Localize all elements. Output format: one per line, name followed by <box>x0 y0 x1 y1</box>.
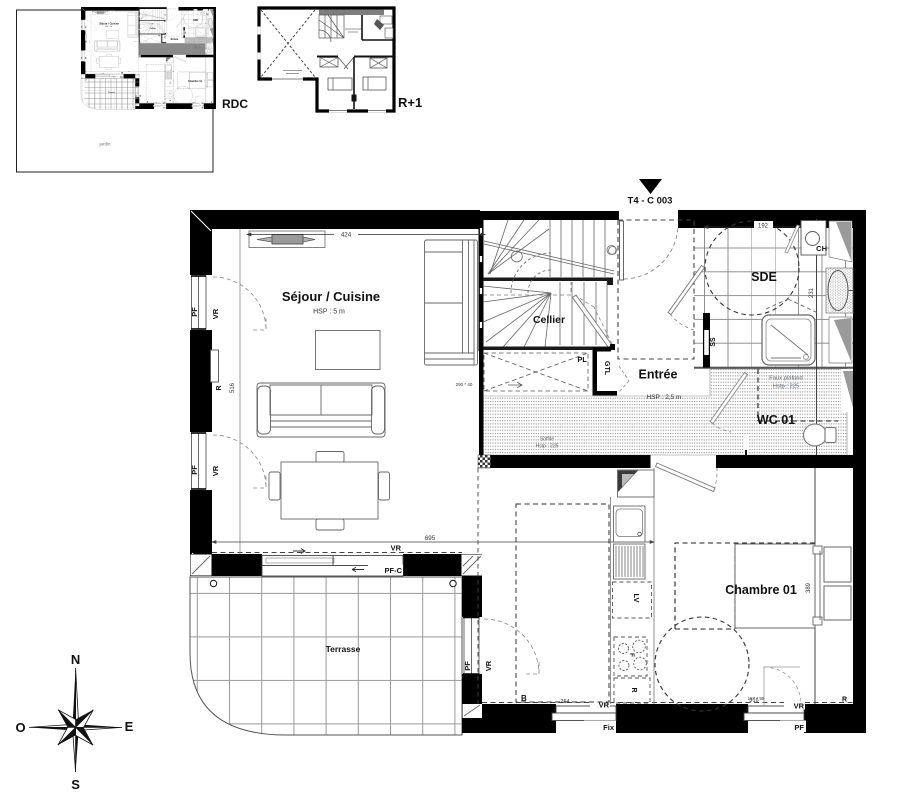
svg-text:SDE: SDE <box>751 270 777 284</box>
svg-text:S: S <box>71 777 80 792</box>
svg-text:PF-C: PF-C <box>385 566 403 575</box>
svg-text:516: 516 <box>230 382 236 393</box>
svg-text:PF: PF <box>794 723 804 732</box>
svg-text:O: O <box>15 720 25 735</box>
svg-text:R: R <box>842 697 847 704</box>
svg-text:CH: CH <box>816 244 827 253</box>
svg-text:231: 231 <box>809 287 815 298</box>
svg-text:E: E <box>125 719 134 734</box>
svg-text:PF: PF <box>190 307 199 317</box>
svg-text:Entrée: Entrée <box>639 368 678 382</box>
svg-text:PF: PF <box>190 465 199 475</box>
svg-text:VR: VR <box>794 702 805 711</box>
svg-text:Cellier: Cellier <box>533 314 565 326</box>
svg-text:N: N <box>71 652 80 667</box>
svg-text:695: 695 <box>425 535 436 542</box>
svg-text:VR: VR <box>211 308 220 319</box>
svg-text:jardin: jardin <box>98 142 111 147</box>
svg-text:Hstp : 225: Hstp : 225 <box>536 444 559 450</box>
svg-text:VR: VR <box>211 465 220 476</box>
svg-text:PF: PF <box>463 661 472 671</box>
svg-text:290 * 40: 290 * 40 <box>456 382 473 387</box>
svg-text:SS: SS <box>710 337 717 347</box>
svg-text:Terrasse: Terrasse <box>326 644 361 654</box>
svg-text:GTL: GTL <box>603 361 610 376</box>
svg-text:Fix: Fix <box>603 723 615 732</box>
svg-text:PL: PL <box>577 355 587 364</box>
svg-text:389: 389 <box>806 582 812 593</box>
svg-text:T4 - C 003: T4 - C 003 <box>628 196 673 207</box>
svg-text:HSP : 5 m: HSP : 5 m <box>313 309 345 316</box>
svg-text:RDC: RDC <box>222 97 248 111</box>
svg-text:Soffite: Soffite <box>540 437 554 443</box>
svg-text:HSP : 2,5 m: HSP : 2,5 m <box>647 394 682 401</box>
svg-text:192: 192 <box>758 224 769 230</box>
svg-text:R+1: R+1 <box>398 95 422 110</box>
svg-text:WC 01: WC 01 <box>757 413 795 427</box>
svg-text:VR: VR <box>484 660 493 671</box>
svg-text:R: R <box>630 687 637 692</box>
svg-text:Séjour / Cuisine: Séjour / Cuisine <box>282 289 380 304</box>
svg-text:Chambre 01: Chambre 01 <box>725 583 797 597</box>
svg-text:Hstp : 225: Hstp : 225 <box>773 384 799 390</box>
svg-text:LV: LV <box>632 593 641 602</box>
svg-text:VR: VR <box>391 544 402 553</box>
svg-text:R: R <box>216 385 223 390</box>
svg-text:Faux plafond: Faux plafond <box>769 376 803 382</box>
svg-text:424: 424 <box>341 232 352 239</box>
svg-text:157 * 95: 157 * 95 <box>748 696 765 701</box>
svg-text:B: B <box>521 694 527 703</box>
svg-text:F: F <box>628 653 635 657</box>
